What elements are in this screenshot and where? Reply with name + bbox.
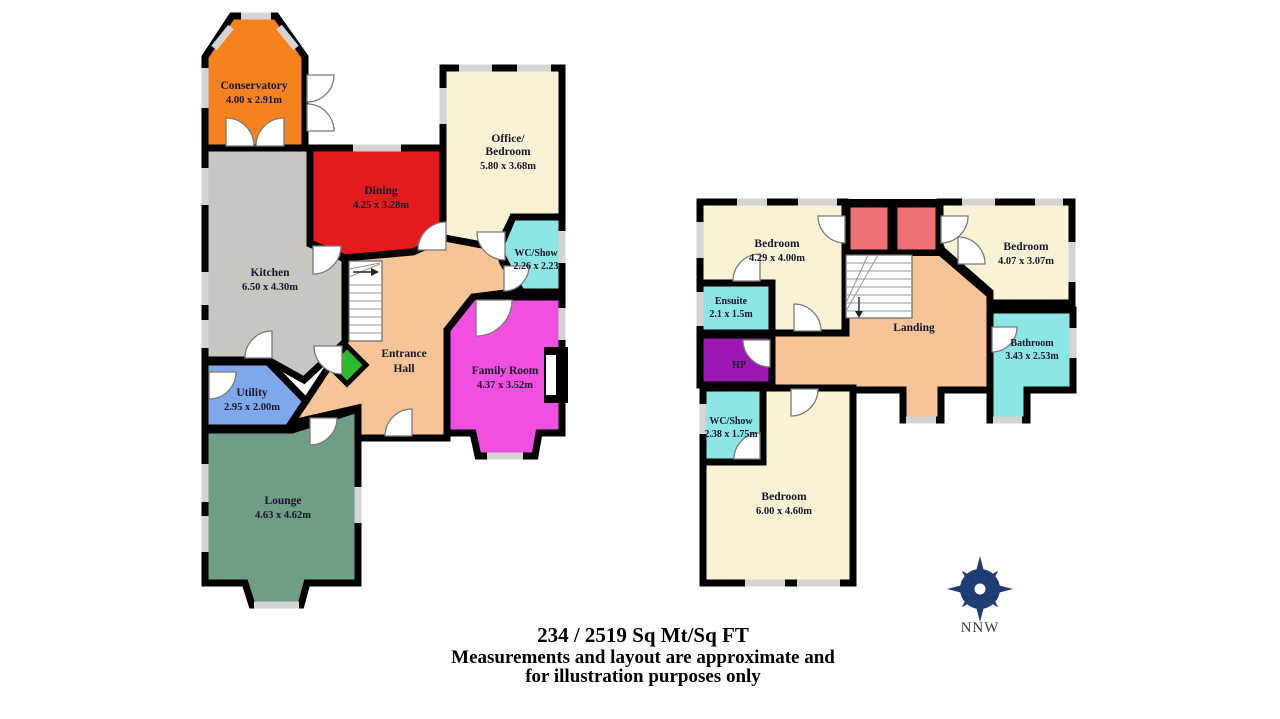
stairs-first (846, 255, 912, 318)
room-dims: 2.26 x 2.23 (514, 261, 559, 272)
room-dims: 2.95 x 2.00m (224, 402, 280, 413)
room-label: Dining (364, 185, 397, 197)
footer: 234 / 2519 Sq Mt/Sq FT Measurements and … (451, 623, 835, 687)
room-label: WC/Show (709, 416, 753, 427)
door-arc (307, 75, 334, 102)
room-ensuite (700, 283, 772, 333)
room-dims: 2.1 x 1.5m (709, 309, 753, 320)
wardrobe-red (848, 205, 890, 252)
room-label: Kitchen (251, 267, 291, 279)
room-label: Entrance (381, 348, 426, 360)
room-dims: 6.00 x 4.60m (756, 506, 812, 517)
fireplace-recess (546, 355, 556, 395)
room-label: Hall (393, 363, 414, 375)
ground-floor-plan: Conservatory 4.00 x 2.91m Kitchen 6.50 x… (205, 16, 568, 605)
room-label: Bedroom (1003, 241, 1049, 253)
room-label: Office/ (491, 133, 525, 145)
room-label: Bedroom (485, 146, 531, 158)
floorplan-page: Conservatory 4.00 x 2.91m Kitchen 6.50 x… (0, 0, 1280, 719)
room-dims: 5.80 x 3.68m (480, 161, 536, 172)
room-label: Conservatory (220, 80, 287, 92)
room-label: HP (732, 360, 746, 371)
stairs-ground (349, 261, 382, 341)
disclaimer-line: Measurements and layout are approximate … (451, 647, 835, 668)
room-dims: 4.37 x 3.52m (477, 380, 533, 391)
room-dims: 4.07 x 3.07m (998, 256, 1054, 267)
room-dims: 2.38 x 1.75m (704, 429, 758, 440)
room-dims: 3.43 x 2.53m (1005, 351, 1059, 362)
floorplan-canvas: Conservatory 4.00 x 2.91m Kitchen 6.50 x… (0, 0, 1280, 719)
door-arc (307, 104, 334, 131)
room-lounge (205, 409, 358, 605)
disclaimer-line: for illustration purposes only (525, 666, 761, 687)
room-dims: 4.25 x 3.28m (353, 200, 409, 211)
room-label: Lounge (264, 495, 301, 507)
room-label: Landing (893, 322, 935, 334)
room-label: Family Room (472, 365, 539, 377)
room-dims: 4.63 x 4.62m (255, 510, 311, 521)
room-label: Ensuite (715, 296, 748, 307)
room-dims: 6.50 x 4.30m (242, 282, 298, 293)
room-label: Bedroom (754, 238, 800, 250)
compass-direction-label: NNW (961, 620, 1000, 636)
room-label: Bedroom (761, 491, 807, 503)
room-label: Bathroom (1010, 338, 1054, 349)
first-floor-plan: Bedroom 4.29 x 4.00m Bedroom 4.07 x 3.07… (700, 199, 1073, 583)
wardrobe-red (895, 205, 938, 252)
compass-rose: NNW (947, 556, 1013, 636)
room-dims: 4.00 x 2.91m (226, 95, 282, 106)
area-summary: 234 / 2519 Sq Mt/Sq FT (537, 623, 749, 647)
room-dims: 4.29 x 4.00m (749, 253, 805, 264)
compass-center (975, 584, 986, 595)
room-label: Utility (236, 387, 268, 399)
room-label: WC/Show (514, 248, 558, 259)
